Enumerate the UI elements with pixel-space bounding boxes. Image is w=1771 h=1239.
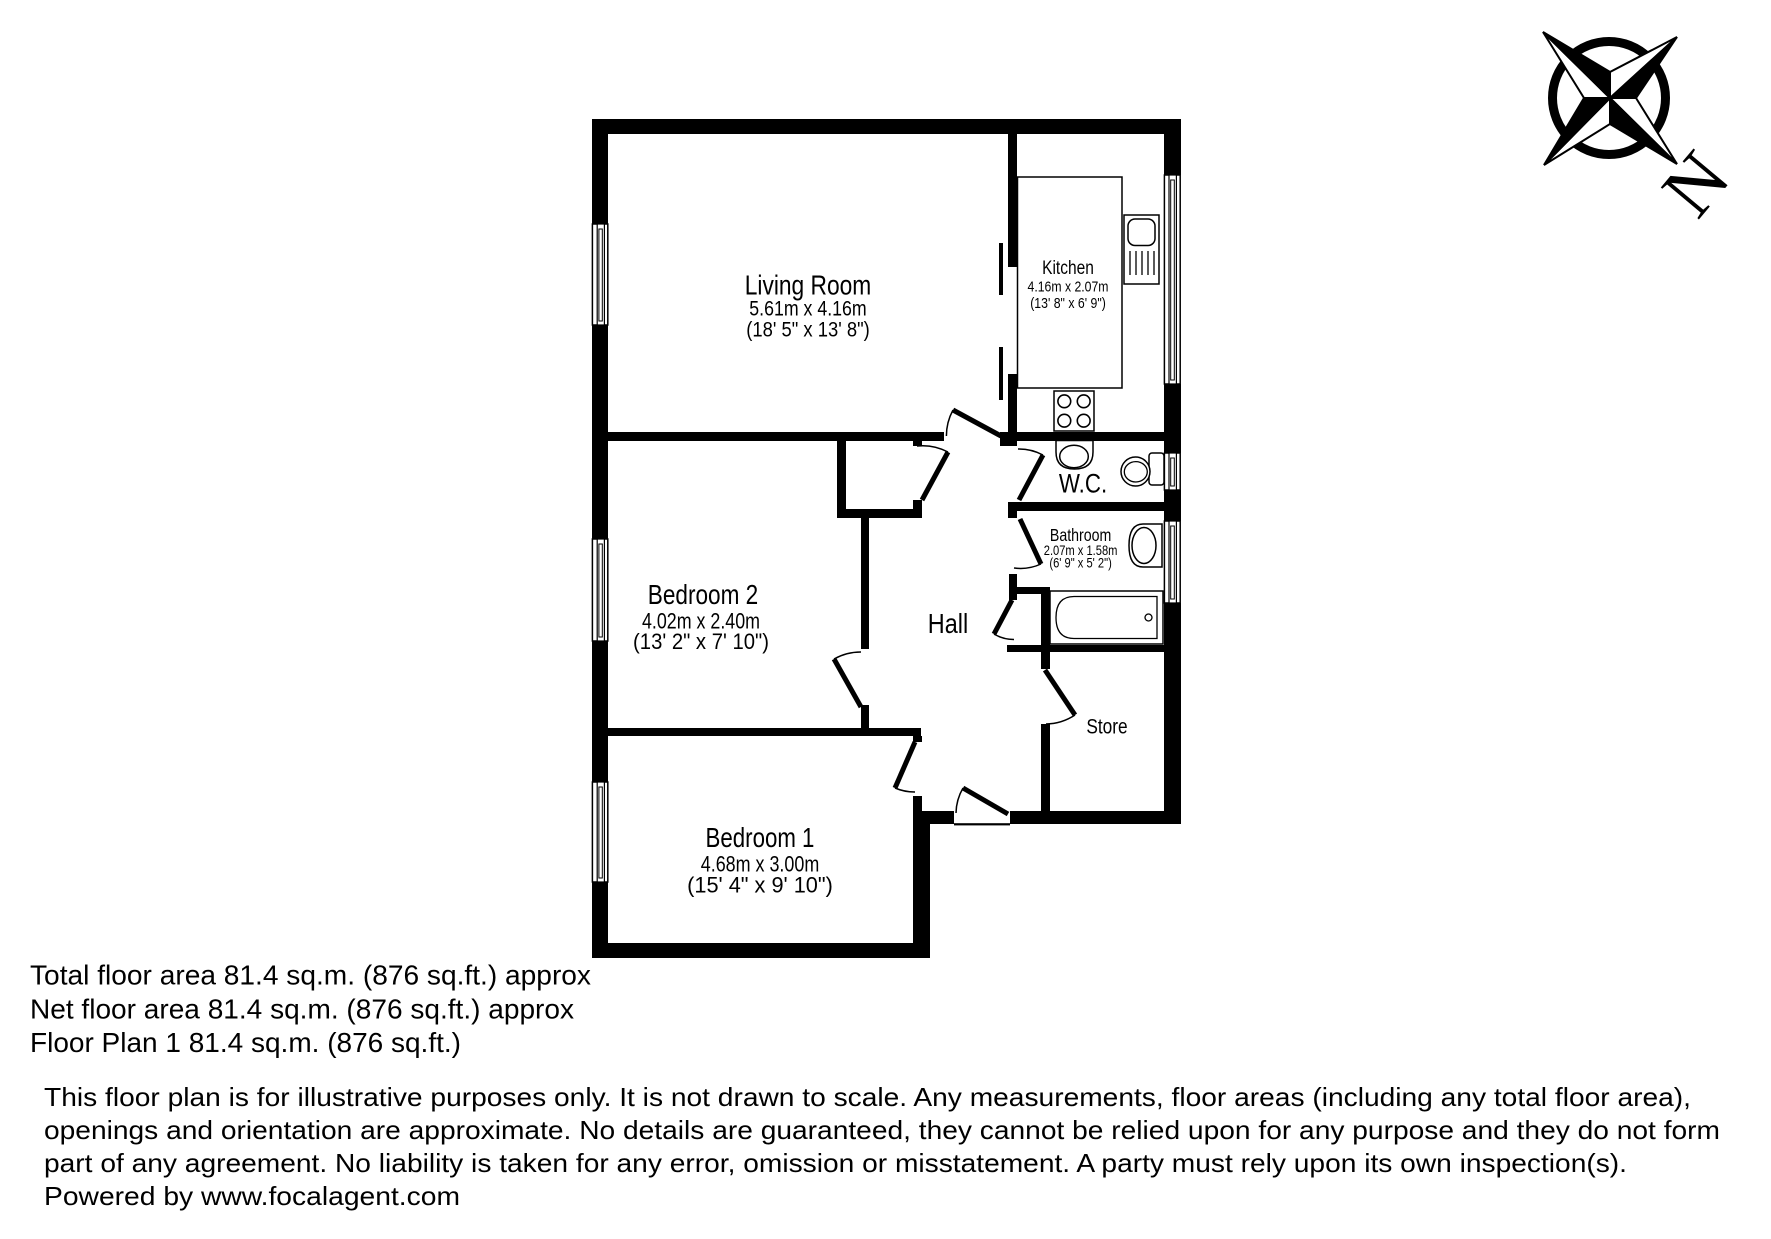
svg-text:Hall: Hall: [928, 608, 968, 639]
svg-text:Bathroom: Bathroom: [1050, 525, 1111, 545]
svg-text:(13' 8" x 6' 9"): (13' 8" x 6' 9"): [1030, 295, 1106, 312]
svg-text:part of any agreement. No liab: part of any agreement. No liability is t…: [44, 1148, 1627, 1178]
svg-text:openings and orientation are a: openings and orientation are approximate…: [44, 1115, 1720, 1145]
svg-text:Floor Plan 1 81.4 sq.m. (876 s: Floor Plan 1 81.4 sq.m. (876 sq.ft.): [30, 1027, 461, 1058]
svg-text:Bedroom 2: Bedroom 2: [648, 579, 758, 610]
svg-text:Bedroom 1: Bedroom 1: [706, 822, 815, 853]
svg-text:Store: Store: [1086, 716, 1127, 739]
svg-text:(18' 5" x 13' 8"): (18' 5" x 13' 8"): [746, 318, 870, 341]
svg-text:Net floor area 81.4 sq.m. (876: Net floor area 81.4 sq.m. (876 sq.ft.) a…: [30, 994, 574, 1025]
svg-text:(15' 4" x 9' 10"): (15' 4" x 9' 10"): [687, 873, 833, 898]
svg-text:This floor plan is for illustr: This floor plan is for illustrative purp…: [44, 1082, 1691, 1112]
svg-text:5.61m x 4.16m: 5.61m x 4.16m: [749, 297, 866, 320]
svg-text:4.16m x 2.07m: 4.16m x 2.07m: [1028, 278, 1109, 295]
svg-text:(13' 2" x 7' 10"): (13' 2" x 7' 10"): [633, 629, 769, 654]
svg-text:Living Room: Living Room: [745, 270, 872, 301]
svg-text:(6' 9" x 5' 2"): (6' 9" x 5' 2"): [1049, 556, 1111, 571]
svg-text:Powered by www.focalagent.com: Powered by www.focalagent.com: [44, 1181, 460, 1211]
svg-text:Total floor area 81.4 sq.m. (8: Total floor area 81.4 sq.m. (876 sq.ft.)…: [30, 960, 591, 991]
svg-text:W.C.: W.C.: [1059, 469, 1107, 499]
svg-text:Kitchen: Kitchen: [1042, 258, 1094, 279]
